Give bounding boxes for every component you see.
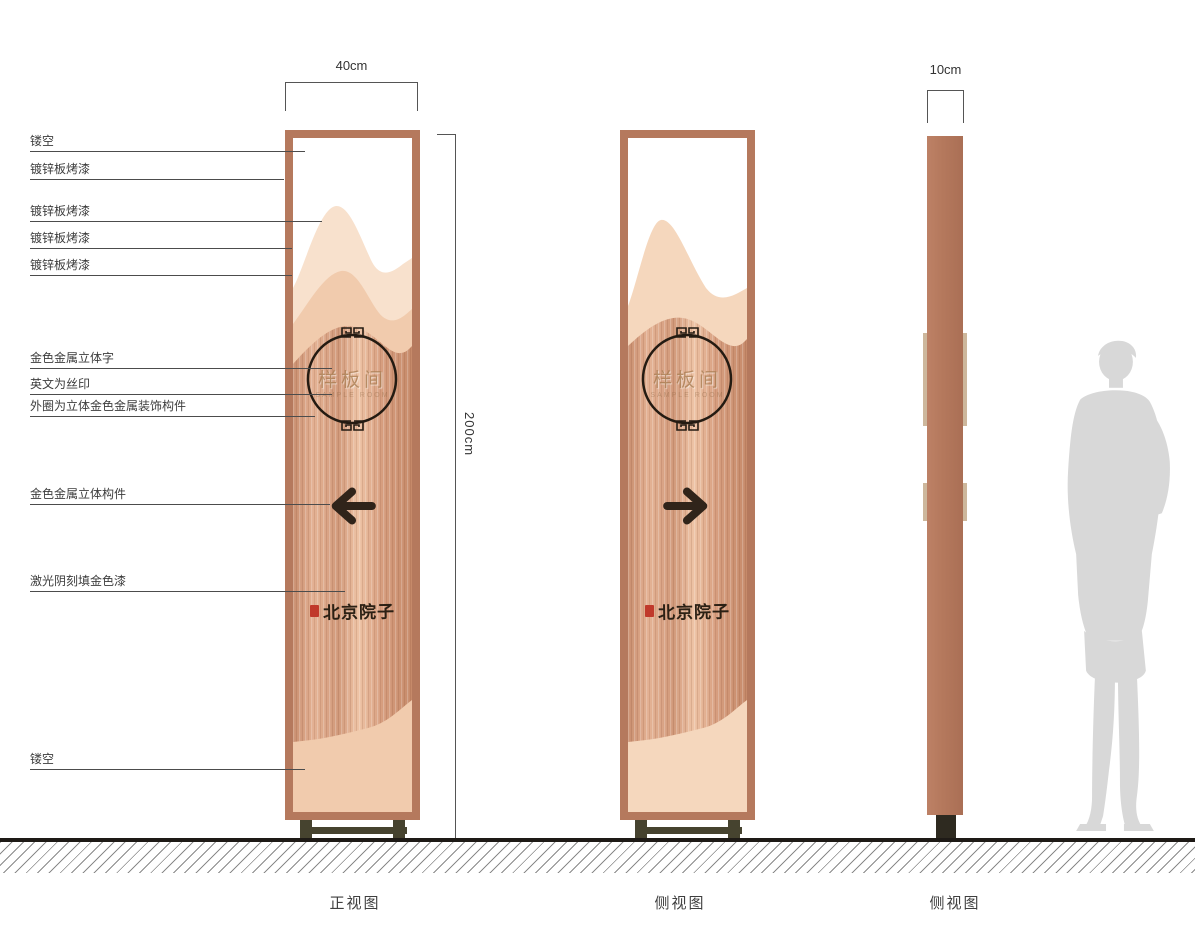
brand-seal-icon bbox=[645, 605, 654, 617]
sign-side: 样板间 SAMPLE ROOM 北京院子 bbox=[620, 130, 755, 820]
brand-name-text: 北京院子 bbox=[658, 597, 730, 623]
sign-side-mountain-graphic bbox=[628, 138, 747, 812]
arrow-left-icon bbox=[325, 485, 379, 527]
room-name-text: 样板间 bbox=[628, 365, 747, 392]
sign-base bbox=[641, 827, 742, 834]
callout-gold-3d-letters: 金色金属立体字 bbox=[30, 351, 332, 369]
dim-height-label: 200cm bbox=[462, 412, 477, 456]
sign-base bbox=[306, 827, 407, 834]
dim-depth-bracket bbox=[927, 90, 964, 123]
callout-galvanized-layer2: 镀锌板烤漆 bbox=[30, 231, 292, 249]
callout-label: 激光阴刻填金色漆 bbox=[30, 574, 126, 588]
callout-label: 外圈为立体金色金属装饰构件 bbox=[30, 399, 186, 413]
callout-label: 镂空 bbox=[30, 752, 54, 766]
arrow-right-icon bbox=[660, 485, 714, 527]
sign-profile bbox=[927, 136, 963, 815]
dim-depth-label: 10cm bbox=[912, 62, 979, 77]
callout-label: 金色金属立体构件 bbox=[30, 487, 126, 501]
dim-width-bracket bbox=[285, 82, 418, 111]
brand-row: 北京院子 bbox=[293, 598, 412, 623]
sign-front: 样板间 SAMPLE ROOM 北京院子 bbox=[285, 130, 420, 820]
callout-hollow-bottom: 镂空 bbox=[30, 752, 305, 770]
ground-hatch bbox=[0, 842, 1195, 873]
view-label-front: 正视图 bbox=[300, 892, 410, 913]
callout-label: 镀锌板烤漆 bbox=[30, 258, 90, 272]
brand-seal-icon bbox=[310, 605, 319, 617]
callout-english-silkscreen: 英文为丝印 bbox=[30, 377, 332, 395]
callout-label: 金色金属立体字 bbox=[30, 351, 114, 365]
drawing-canvas: 镂空 镀锌板烤漆 镀锌板烤漆 镀锌板烤漆 镀锌板烤漆 金色金属立体字 英文为丝印… bbox=[0, 0, 1195, 927]
room-name-en-text: SAMPLE ROOM bbox=[628, 392, 747, 399]
callout-galvanized-frame: 镀锌板烤漆 bbox=[30, 162, 284, 180]
callout-label: 镀锌板烤漆 bbox=[30, 204, 90, 218]
dim-height-line bbox=[455, 134, 456, 838]
callout-label: 镀锌板烤漆 bbox=[30, 231, 90, 245]
person-silhouette-icon bbox=[1040, 340, 1180, 833]
profile-base-foot bbox=[936, 815, 956, 838]
callout-label: 镂空 bbox=[30, 134, 54, 148]
callout-galvanized-layer1: 镀锌板烤漆 bbox=[30, 204, 322, 222]
callout-hollow-top: 镂空 bbox=[30, 134, 305, 152]
dim-width-label: 40cm bbox=[285, 58, 418, 73]
brand-row: 北京院子 bbox=[628, 598, 747, 623]
sign-front-mountain-graphic bbox=[293, 138, 412, 812]
view-label-side-1: 侧视图 bbox=[625, 892, 735, 913]
brand-name-text: 北京院子 bbox=[323, 597, 395, 623]
view-label-side-2: 侧视图 bbox=[900, 892, 1010, 913]
dim-height-tick bbox=[437, 134, 456, 135]
callout-laser-engrave: 激光阴刻填金色漆 bbox=[30, 574, 345, 592]
callout-galvanized-layer3: 镀锌板烤漆 bbox=[30, 258, 292, 276]
callout-outer-ring: 外圈为立体金色金属装饰构件 bbox=[30, 399, 315, 417]
callout-gold-3d-component: 金色金属立体构件 bbox=[30, 487, 330, 505]
callout-label: 英文为丝印 bbox=[30, 377, 90, 391]
callout-label: 镀锌板烤漆 bbox=[30, 162, 90, 176]
